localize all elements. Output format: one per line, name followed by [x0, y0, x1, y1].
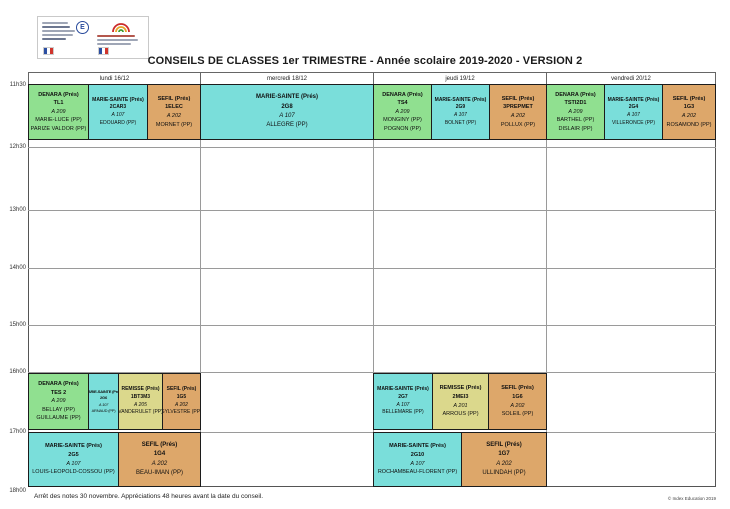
president: REMISSE (Prés): [440, 384, 482, 393]
logo-text-placeholder: [42, 30, 75, 32]
room: A 107: [410, 460, 424, 469]
time-label: 15h00: [2, 322, 26, 328]
time-label: 12h30: [2, 144, 26, 150]
class-name: 2CAR3: [110, 104, 126, 112]
conseil-cell-2mei3: REMISSE (Prés) 2MEI3 A 201 ARROUS (PP): [432, 373, 489, 430]
grid-line: [28, 268, 716, 269]
pp-teacher: MONGINY (PP): [383, 116, 422, 125]
class-name: TL1: [54, 99, 64, 108]
class-name: 1G3: [684, 103, 694, 112]
class-name: 1G4: [154, 450, 165, 459]
conseil-cell-tsti2d1: DENARA (Prés) TSTI2D1 A 209 BARTHEL (PP)…: [546, 84, 605, 140]
president: MARIE-SAINTE (Prés): [377, 386, 429, 394]
conseil-cell-1g7: SEFIL (Prés) 1G7 A 202 ULLINDAH (PP): [461, 432, 547, 487]
pp-teacher: BELLEMARE (PP): [382, 409, 423, 417]
pp-teacher: BEAU-IMAN (PP): [136, 469, 183, 478]
conseil-cell-2car3: MARIE-SAINTE (Prés) 2CAR3 A 107 EDOUARD …: [88, 84, 148, 140]
time-label: 13h00: [2, 207, 26, 213]
ministry-logo: E: [38, 17, 93, 58]
logo-text-placeholder: [42, 34, 73, 36]
logo-text-placeholder: [97, 35, 135, 37]
time-label: 17h00: [2, 429, 26, 435]
president: DENARA (Prés): [555, 91, 595, 100]
room: A 107: [627, 112, 640, 120]
conseil-cell-2g6: MARIE-SAINTE (Prés) 2G6 A 107 ARNAUD (PP…: [88, 373, 119, 430]
conseil-cell-2g7: MARIE-SAINTE (Prés) 2G7 A 107 BELLEMARE …: [373, 373, 433, 430]
conseil-cell-tes2: DENARA (Prés) TES 2 A 209 BELLAY (PP) GU…: [28, 373, 89, 430]
room: A 201: [453, 402, 467, 411]
conseil-cell-1g6: SEFIL (Prés) 1G6 A 202 SOLEIL (PP): [488, 373, 547, 430]
pp-teacher: BELLAY (PP): [42, 406, 75, 415]
pp-teacher: DISLAIR (PP): [559, 125, 593, 134]
president: SEFIL (Prés): [167, 386, 197, 394]
logo-box: E: [37, 16, 149, 59]
conseil-cell-ts4: DENARA (Prés) TS4 A 209 MONGINY (PP) POG…: [373, 84, 432, 140]
credit-text: © Index Education 2019: [668, 496, 716, 501]
room: A 107: [112, 112, 125, 120]
pp-teacher: PARIZE VALDOR (PP): [31, 125, 87, 134]
president: SEFIL (Prés): [142, 441, 178, 450]
conseil-cell-1elec: SEFIL (Prés) 1ELEC A 202 MORNET (PP): [147, 84, 201, 140]
president: DENARA (Prés): [38, 380, 78, 389]
president: SEFIL (Prés): [158, 95, 191, 104]
pp-teacher: POLLUX (PP): [501, 121, 535, 130]
pp-teacher: POGNON (PP): [384, 125, 421, 134]
conseil-cell-3prepmet: SEFIL (Prés) 3PREPMET A 202 POLLUX (PP): [489, 84, 547, 140]
class-name: 2G10: [411, 451, 424, 460]
room: A 107: [397, 402, 410, 410]
logo-text-placeholder: [97, 43, 131, 45]
president: MARIE-SAINTE (Prés): [45, 442, 102, 451]
pp-teacher: ULLINDAH (PP): [482, 469, 525, 478]
emblem-letter: E: [80, 24, 85, 31]
pp-teacher: SYLVESTRE (PP): [162, 409, 201, 417]
logo-text-placeholder: [42, 22, 68, 24]
conseil-cell-2g4: MARIE-SAINTE (Prés) 2G4 A 107 VILLERONCE…: [604, 84, 663, 140]
footer-note: Arrêt des notes 30 novembre. Appréciatio…: [34, 493, 263, 500]
grid-line: [28, 210, 716, 211]
french-flag-icon: [98, 47, 109, 55]
president: SEFIL (Prés): [502, 95, 535, 104]
pp-teacher: ARNAUD (PP): [92, 408, 116, 414]
class-name: 1G5: [177, 394, 186, 402]
room: A 202: [510, 402, 524, 411]
pp-teacher: LOUIS-LEOPOLD-COSSOU (PP): [32, 468, 115, 477]
conseil-cell-1g5: SEFIL (Prés) 1G5 A 202 SYLVESTRE (PP): [162, 373, 201, 430]
conseil-cell-1g3: SEFIL (Prés) 1G3 A 202 ROSAMOND (PP): [662, 84, 716, 140]
class-name: TSTI2D1: [564, 99, 586, 108]
logo-text-placeholder: [42, 38, 66, 40]
time-label: 18h00: [2, 488, 26, 494]
class-name: 1ELEC: [165, 103, 183, 112]
pp-teacher: EDOUARD (PP): [100, 120, 136, 128]
president: MARIE-SAINTE (Prés): [256, 93, 318, 102]
president: MARIE-SAINTE (Prés): [435, 97, 487, 105]
room: A 202: [175, 402, 188, 410]
conseil-cell-2g9: MARIE-SAINTE (Prés) 2G9 A 107 BOLNET (PP…: [431, 84, 490, 140]
room: A 202: [152, 460, 167, 469]
class-name: 1G7: [498, 450, 509, 459]
time-label: 11h30: [2, 82, 26, 88]
room: A 107: [454, 112, 467, 120]
room: A 209: [395, 108, 409, 117]
room: A 209: [568, 108, 582, 117]
president: REMISSE (Prés): [121, 386, 159, 394]
room: A 202: [682, 112, 696, 121]
time-label: 16h00: [2, 369, 26, 375]
room: A 202: [167, 112, 181, 121]
logo-text-placeholder: [97, 39, 138, 41]
pp-teacher: ROSAMOND (PP): [667, 121, 712, 130]
school-crest-logo: [93, 17, 148, 58]
pp-teacher: GUILLAUME (PP): [36, 414, 80, 423]
pp-teacher: ARROUS (PP): [442, 410, 478, 419]
conseil-cell-2g8: MARIE-SAINTE (Prés) 2G8 A 107 ALLEGRE (P…: [200, 84, 374, 140]
class-name: 2G8: [281, 103, 292, 112]
room: A 202: [496, 460, 511, 469]
conseil-cell-1g4: SEFIL (Prés) 1G4 A 202 BEAU-IMAN (PP): [118, 432, 201, 487]
timetable-page: E CONSEILS DE CLASSES 1er TRIMESTRE - An…: [0, 0, 730, 509]
french-flag-icon: [43, 47, 54, 55]
class-name: TS4: [397, 99, 407, 108]
room: A 209: [51, 108, 65, 117]
class-name: TES 2: [51, 389, 66, 398]
grid-line: [28, 147, 716, 148]
pp-teacher: BARTHEL (PP): [557, 116, 595, 125]
pp-teacher: VILLERONCE (PP): [612, 120, 655, 128]
president: SEFIL (Prés): [673, 95, 706, 104]
president: DENARA (Prés): [38, 91, 78, 100]
president: DENARA (Prés): [382, 91, 422, 100]
president: SEFIL (Prés): [486, 441, 522, 450]
conseil-cell-tl1: DENARA (Prés) TL1 A 209 MARIE-LUCE (PP) …: [28, 84, 89, 140]
room: A 205: [134, 402, 147, 410]
class-name: 1G6: [512, 393, 522, 402]
pp-teacher: ROCHAMBEAU-FLORENT (PP): [378, 468, 457, 477]
class-name: 2G7: [398, 394, 407, 402]
pp-teacher: MORNET (PP): [156, 121, 192, 130]
rainbow-arcs-icon: [109, 20, 133, 33]
room: A 107: [279, 112, 294, 121]
pp-teacher: BOLNET (PP): [445, 120, 476, 128]
president: MARIE-SAINTE (Prés): [608, 97, 660, 105]
pp-teacher: MARIE-LUCE (PP): [35, 116, 81, 125]
grid-line: [28, 325, 716, 326]
class-name: 2G9: [456, 104, 465, 112]
emblem-e-icon: E: [76, 21, 89, 34]
president: MARIE-SAINTE (Prés): [389, 442, 446, 451]
time-label: 14h00: [2, 265, 26, 271]
class-name: 2MEI3: [453, 393, 469, 402]
president: MARIE-SAINTE (Prés): [92, 97, 144, 105]
conseil-cell-2g5: MARIE-SAINTE (Prés) 2G5 A 107 LOUIS-LEOP…: [28, 432, 119, 487]
class-name: 2G4: [629, 104, 638, 112]
pp-teacher: SOLEIL (PP): [502, 410, 534, 419]
logo-text-placeholder: [42, 26, 70, 28]
pp-teacher: VANDERULET (PP): [118, 409, 163, 417]
conseil-cell-2g10: MARIE-SAINTE (Prés) 2G10 A 107 ROCHAMBEA…: [373, 432, 462, 487]
class-name: 2G5: [68, 451, 78, 460]
pp-teacher: ALLEGRE (PP): [266, 121, 307, 130]
president: SEFIL (Prés): [501, 384, 534, 393]
class-name: 1BT3M3: [131, 394, 150, 402]
class-name: 3PREPMET: [503, 103, 533, 112]
room: A 107: [66, 460, 80, 469]
room: A 209: [51, 397, 65, 406]
conseil-cell-1bt3m3: REMISSE (Prés) 1BT3M3 A 205 VANDERULET (…: [118, 373, 163, 430]
page-title: CONSEILS DE CLASSES 1er TRIMESTRE - Anné…: [0, 55, 730, 67]
room: A 202: [511, 112, 525, 121]
